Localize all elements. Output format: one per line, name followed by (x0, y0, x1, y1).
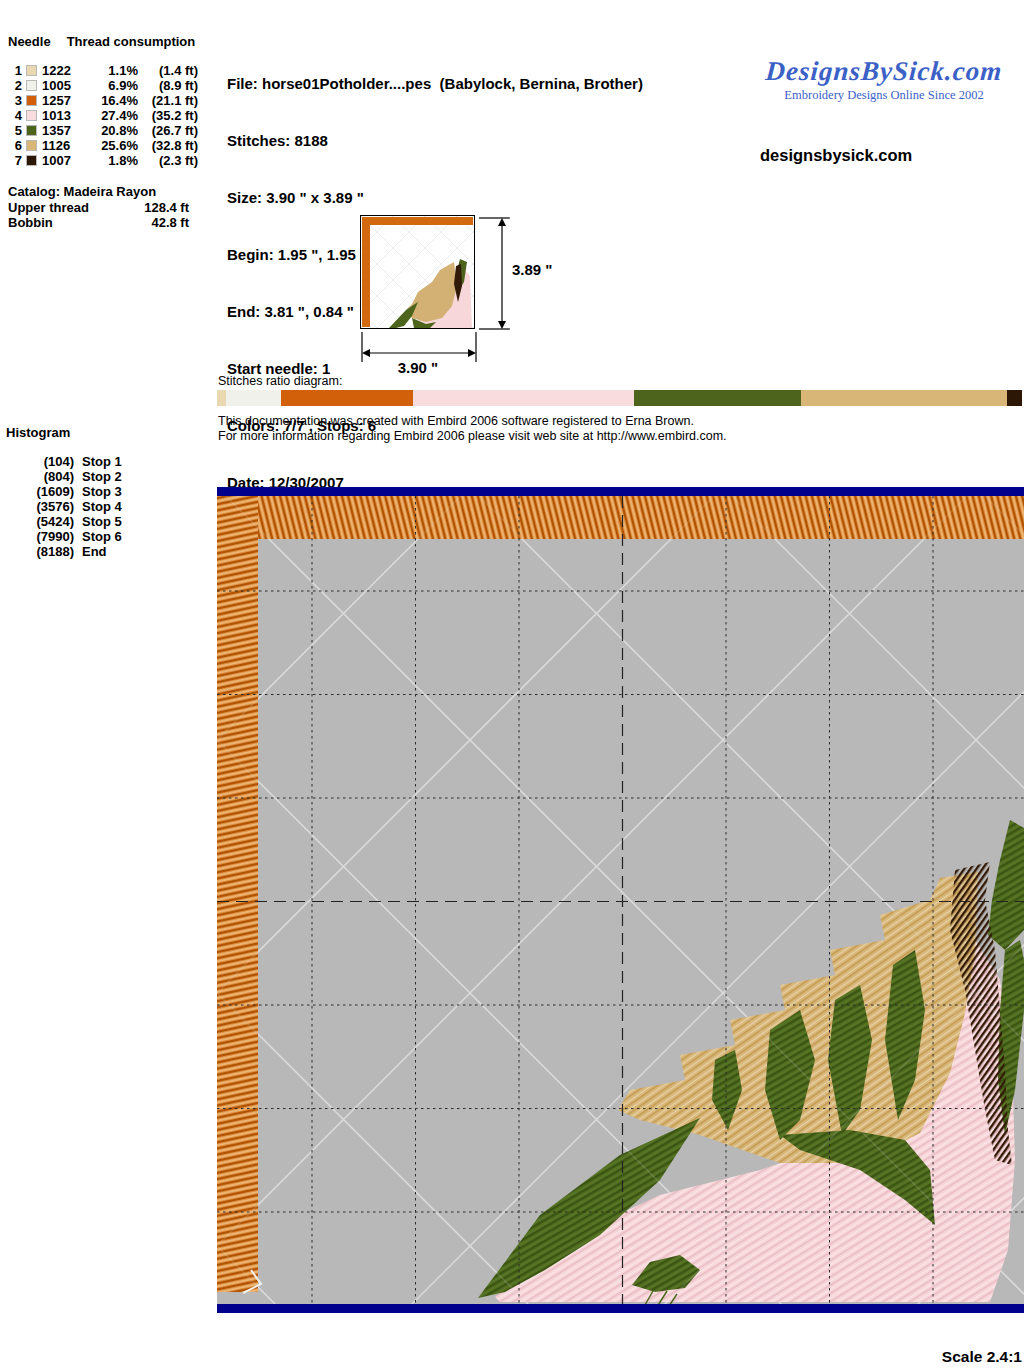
stop-label: Stop 6 (82, 529, 122, 544)
height-dim-label: 3.89 " (512, 261, 552, 278)
needle-rows: 112221.1%(1.4 ft)210056.9%(8.9 ft)312571… (0, 63, 198, 168)
stitch-count: (3576) (0, 499, 74, 514)
histogram-row: (1609)Stop 3 (0, 484, 122, 499)
thread-color-swatch (26, 80, 37, 91)
upper-thread-value: 128.4 ft (144, 200, 189, 216)
stop-label: Stop 4 (82, 499, 122, 514)
needle-number: 2 (0, 78, 22, 93)
ratio-segment (281, 390, 413, 406)
catalog-block: Catalog: Madeira Rayon Upper thread 128.… (8, 184, 189, 231)
thread-color-swatch (26, 65, 37, 76)
designsbysick-logo: DesignsBySick.com (755, 56, 1013, 87)
needle-number: 4 (0, 108, 22, 123)
stitches-line: Stitches: 8188 (227, 131, 643, 150)
doc-note-line1: This documentation was created with Embi… (218, 414, 727, 429)
needle-number: 1 (0, 63, 22, 78)
needle-row: 5135720.8%(26.7 ft) (0, 123, 198, 138)
stitch-count: (1609) (0, 484, 74, 499)
histogram-row: (7990)Stop 6 (0, 529, 122, 544)
ratio-segment (1007, 390, 1021, 406)
stop-label: Stop 3 (82, 484, 122, 499)
upper-thread-label: Upper thread (8, 200, 89, 216)
needle-row: 210056.9%(8.9 ft) (0, 78, 198, 93)
histogram-rows: (104)Stop 1(804)Stop 2(1609)Stop 3(3576)… (0, 454, 122, 559)
thread-percent: 1.8% (86, 153, 138, 168)
stop-label: End (82, 544, 107, 559)
ratio-segment (413, 390, 634, 406)
needle-number: 7 (0, 153, 22, 168)
website-url: designsbysick.com (760, 146, 912, 165)
consumption-column-header: Thread consumption (67, 34, 196, 49)
thread-code: 1357 (42, 123, 86, 138)
thread-percent: 16.4% (86, 93, 138, 108)
stitch-count: (8188) (0, 544, 74, 559)
ratio-bar (217, 390, 1022, 406)
needle-number: 3 (0, 93, 22, 108)
histogram-title: Histogram (6, 425, 70, 440)
needle-row: 6112625.6%(32.8 ft) (0, 138, 198, 153)
thread-percent: 25.6% (86, 138, 138, 153)
ratio-diagram-label: Stitches ratio diagram: (218, 374, 342, 388)
histogram-row: (804)Stop 2 (0, 469, 122, 484)
histogram-row: (3576)Stop 4 (0, 499, 122, 514)
thread-color-swatch (26, 110, 37, 121)
doc-note: This documentation was created with Embi… (218, 414, 727, 444)
brand-block: DesignsBySick.com Embroidery Designs Onl… (756, 56, 1012, 103)
thread-code: 1005 (42, 78, 86, 93)
ratio-segment (226, 390, 282, 406)
needle-number: 5 (0, 123, 22, 138)
doc-note-line2: For more information regarding Embird 20… (218, 429, 727, 444)
thread-length: (8.9 ft) (138, 78, 198, 93)
thread-percent: 1.1% (86, 63, 138, 78)
needle-row: 112221.1%(1.4 ft) (0, 63, 198, 78)
width-dim-label: 3.90 " (398, 359, 438, 376)
ratio-segment (801, 390, 1007, 406)
catalog-name: Catalog: Madeira Rayon (8, 184, 189, 200)
scale-label: Scale 2.4:1 (900, 1348, 1022, 1366)
needle-number: 6 (0, 138, 22, 153)
thread-color-swatch (26, 140, 37, 151)
thread-code: 1222 (42, 63, 86, 78)
stitch-count: (7990) (0, 529, 74, 544)
bobbin-row: Bobbin 42.8 ft (8, 215, 189, 231)
stop-label: Stop 2 (82, 469, 122, 484)
ratio-segment (634, 390, 801, 406)
thread-length: (21.1 ft) (138, 93, 198, 108)
needle-row: 3125716.4%(21.1 ft) (0, 93, 198, 108)
thread-length: (2.3 ft) (138, 153, 198, 168)
stitch-count: (104) (0, 454, 74, 469)
thread-code: 1126 (42, 138, 86, 153)
thread-color-swatch (26, 125, 37, 136)
histogram-row: (5424)Stop 5 (0, 514, 122, 529)
thread-percent: 27.4% (86, 108, 138, 123)
thread-code: 1257 (42, 93, 86, 108)
upper-thread-row: Upper thread 128.4 ft (8, 200, 189, 216)
stop-label: Stop 5 (82, 514, 122, 529)
stop-label: Stop 1 (82, 454, 122, 469)
needle-row: 4101327.4%(35.2 ft) (0, 108, 198, 123)
hoop-bar-bottom (217, 1304, 1024, 1313)
thread-length: (32.8 ft) (138, 138, 198, 153)
histogram-row: (104)Stop 1 (0, 454, 122, 469)
thread-color-swatch (26, 95, 37, 106)
design-preview-canvas (217, 487, 1024, 1313)
stitch-count: (804) (0, 469, 74, 484)
needle-table-header: Needle Thread consumption (8, 34, 195, 49)
thread-percent: 6.9% (86, 78, 138, 93)
thread-length: (1.4 ft) (138, 63, 198, 78)
stitch-count: (5424) (0, 514, 74, 529)
embroidery-doc-page: Needle Thread consumption 112221.1%(1.4 … (0, 0, 1024, 1370)
histogram-row: (8188)End (0, 544, 122, 559)
thread-percent: 20.8% (86, 123, 138, 138)
bobbin-value: 42.8 ft (151, 215, 189, 231)
thread-code: 1013 (42, 108, 86, 123)
dimension-annotations: 3.89 " 3.90 " (340, 200, 575, 390)
thread-color-swatch (26, 155, 37, 166)
needle-column-header: Needle (8, 34, 51, 49)
thread-code: 1007 (42, 153, 86, 168)
hoop-bar-top (217, 487, 1024, 496)
thread-length: (35.2 ft) (138, 108, 198, 123)
dim-arrowheads (362, 218, 506, 357)
logo-tagline: Embroidery Designs Online Since 2002 (756, 88, 1012, 103)
thread-length: (26.7 ft) (138, 123, 198, 138)
file-name-line: File: horse01Potholder....pes (Babylock,… (227, 74, 643, 93)
needle-row: 710071.8%(2.3 ft) (0, 153, 198, 168)
bobbin-label: Bobbin (8, 215, 53, 231)
ratio-segment (217, 390, 226, 406)
quilting-overlay (217, 496, 1024, 1304)
